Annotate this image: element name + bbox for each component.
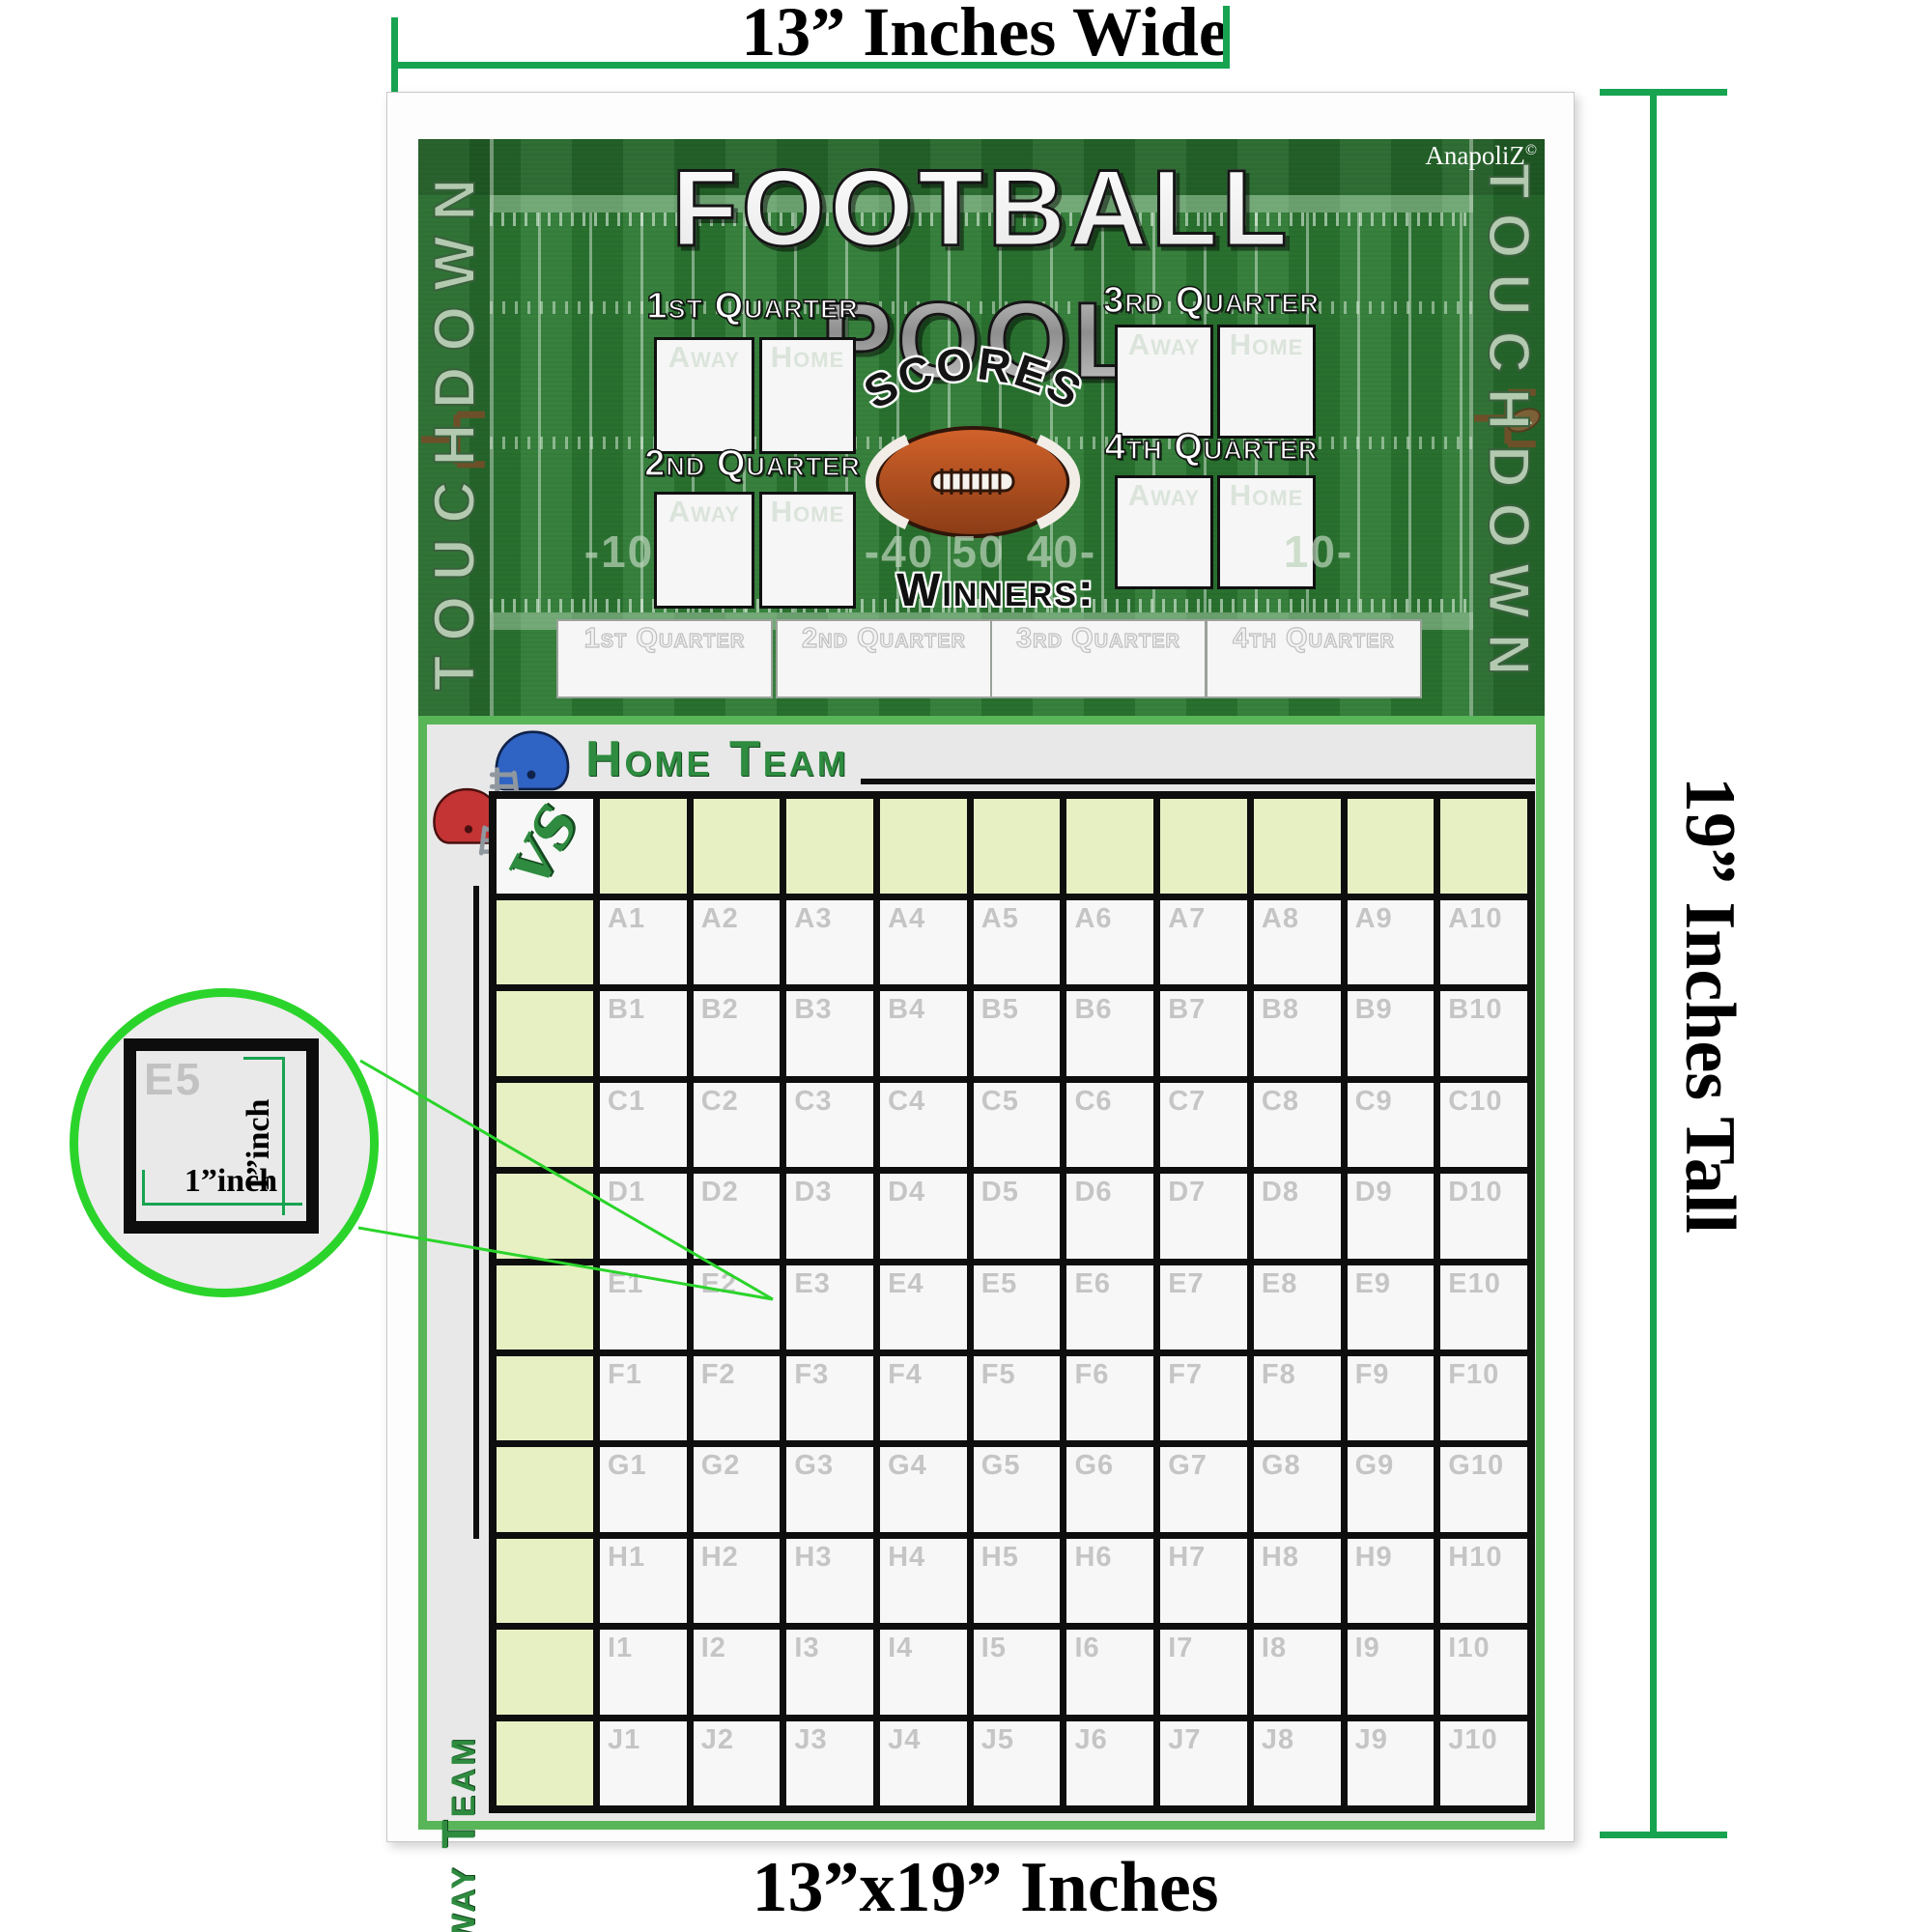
pool-square-cell: A4 (880, 900, 967, 984)
pool-square-cell: C4 (880, 1083, 967, 1167)
cell-width-label: 1”inch (163, 1163, 298, 1200)
pool-square-label: G1 (608, 1450, 647, 1482)
pool-square-cell: J7 (1160, 1721, 1247, 1805)
pool-square-cell: G9 (1348, 1447, 1435, 1531)
pool-square-cell: B3 (786, 991, 873, 1075)
column-number-cell (1254, 799, 1341, 894)
width-measure-line (391, 62, 1230, 69)
pool-square-label: I1 (608, 1633, 633, 1664)
row-number-cell (497, 1174, 593, 1258)
pool-square-label: B8 (1262, 994, 1299, 1026)
pool-square-label: A5 (981, 903, 1019, 935)
column-number-cell (880, 799, 967, 894)
pool-square-label: A3 (794, 903, 832, 935)
pool-square-label: I10 (1448, 1633, 1490, 1664)
pool-square-cell: H6 (1066, 1539, 1153, 1623)
pool-square-cell: C6 (1066, 1083, 1153, 1167)
pool-square-cell: J10 (1440, 1721, 1527, 1805)
football-icon (870, 428, 1075, 536)
height-measure-tick-bottom (1600, 1832, 1727, 1838)
pool-square-cell: F9 (1348, 1356, 1435, 1440)
row-number-cell (497, 991, 593, 1075)
winner-box-label: 2nd Quarter (778, 623, 990, 655)
brand-logo: AnapoliZ© (1425, 141, 1537, 171)
pool-square-label: J10 (1448, 1724, 1497, 1756)
pool-square-cell: B5 (974, 991, 1061, 1075)
pool-square-label: E8 (1262, 1268, 1297, 1300)
pool-square-cell: E5 (974, 1265, 1061, 1350)
quarter-home-box-label: Home (762, 495, 853, 529)
pool-square-cell: B2 (694, 991, 781, 1075)
pool-square-label: E5 (981, 1268, 1017, 1300)
home-team-write-line (861, 779, 1535, 784)
row-number-cell (497, 1265, 593, 1350)
pool-square-cell: E2 (694, 1265, 781, 1350)
column-number-cell (1348, 799, 1435, 894)
pool-square-label: H10 (1448, 1542, 1502, 1574)
pool-square-cell: F8 (1254, 1356, 1341, 1440)
yard-number: 10- (1261, 526, 1377, 578)
pool-square-cell: I1 (600, 1630, 687, 1714)
pool-square-cell: E8 (1254, 1265, 1341, 1350)
pool-square-label: I5 (981, 1633, 1007, 1664)
pool-square-label: G4 (888, 1450, 927, 1482)
pool-square-cell: D7 (1160, 1174, 1247, 1258)
column-number-cell (974, 799, 1061, 894)
pool-square-cell: J2 (694, 1721, 781, 1805)
pool-square-label: B4 (888, 994, 925, 1026)
pool-square-cell: E7 (1160, 1265, 1247, 1350)
pool-square-cell: F10 (1440, 1356, 1527, 1440)
pool-square-cell: F6 (1066, 1356, 1153, 1440)
pool-square-label: C10 (1448, 1086, 1502, 1118)
pool-square-cell: F3 (786, 1356, 873, 1440)
pool-square-cell: I8 (1254, 1630, 1341, 1714)
pool-square-label: C5 (981, 1086, 1019, 1118)
pool-square-cell: A7 (1160, 900, 1247, 984)
pool-square-cell: G4 (880, 1447, 967, 1531)
pool-square-cell: A3 (786, 900, 873, 984)
pool-square-cell: A2 (694, 900, 781, 984)
quarter-away-score-box: Away (654, 337, 754, 454)
pool-square-label: D10 (1448, 1177, 1502, 1208)
pool-square-cell: B1 (600, 991, 687, 1075)
pool-square-label: C7 (1168, 1086, 1206, 1118)
pool-square-label: G3 (794, 1450, 834, 1482)
pool-square-cell: B10 (1440, 991, 1527, 1075)
pool-square-label: C1 (608, 1086, 645, 1118)
pool-square-cell: B7 (1160, 991, 1247, 1075)
pool-square-label: E1 (608, 1268, 643, 1300)
pool-square-cell: D2 (694, 1174, 781, 1258)
pool-square-cell: D8 (1254, 1174, 1341, 1258)
pool-square-cell: B6 (1066, 991, 1153, 1075)
magnified-cell: E5 1”inch 1”inch (124, 1038, 319, 1234)
quarter-home-box-label: Home (762, 340, 853, 375)
winner-box: 1st Quarter (556, 619, 773, 698)
pool-square-label: A7 (1168, 903, 1206, 935)
brand-name: AnapoliZ (1425, 141, 1524, 170)
pool-square-cell: F7 (1160, 1356, 1247, 1440)
pool-square-label: I4 (888, 1633, 913, 1664)
pool-square-cell: E1 (600, 1265, 687, 1350)
pool-square-cell: G1 (600, 1447, 687, 1531)
pool-square-label: D2 (701, 1177, 739, 1208)
winner-box-label: 1st Quarter (558, 623, 771, 655)
pool-square-label: H1 (608, 1542, 645, 1574)
pool-square-cell: D6 (1066, 1174, 1153, 1258)
pool-square-label: C9 (1355, 1086, 1393, 1118)
pool-square-label: J1 (608, 1724, 640, 1756)
pool-square-label: F1 (608, 1359, 642, 1391)
pool-square-label: J2 (701, 1724, 734, 1756)
height-measure-line (1650, 89, 1657, 1838)
pool-square-cell: D1 (600, 1174, 687, 1258)
pool-square-cell: H7 (1160, 1539, 1247, 1623)
pool-square-label: B5 (981, 994, 1019, 1026)
pool-square-cell: A5 (974, 900, 1061, 984)
squares-grid: VSA1A2A3A4A5A6A7A8A9A10B1B2B3B4B5B6B7B8B… (489, 791, 1535, 1813)
row-number-cell (497, 1630, 593, 1714)
pool-square-label: A10 (1448, 903, 1502, 935)
pool-square-cell: I7 (1160, 1630, 1247, 1714)
pool-square-cell: G5 (974, 1447, 1061, 1531)
quarter-away-box-label: Away (1118, 478, 1210, 513)
pool-square-label: F2 (701, 1359, 736, 1391)
height-measure-tick-top (1600, 89, 1727, 96)
home-team-label: Home Team (585, 730, 849, 788)
pool-square-label: C6 (1074, 1086, 1112, 1118)
pool-square-label: C4 (888, 1086, 925, 1118)
pool-square-cell: A9 (1348, 900, 1435, 984)
pool-square-cell: B8 (1254, 991, 1341, 1075)
pool-square-label: D5 (981, 1177, 1019, 1208)
winner-box: 4th Quarter (1206, 619, 1422, 698)
pool-square-label: E4 (888, 1268, 923, 1300)
width-measure-tick-right (1223, 6, 1230, 66)
pool-grid-section: Home Team Away Team VSA1A2A3A4A5A6A7A8A9… (418, 716, 1545, 1830)
scores-arched-text: SCORES (858, 337, 1090, 418)
pool-square-label: F6 (1074, 1359, 1109, 1391)
pool-square-cell: A10 (1440, 900, 1527, 984)
pool-square-label: I7 (1168, 1633, 1193, 1664)
pool-square-label: J8 (1262, 1724, 1294, 1756)
pool-square-label: I8 (1262, 1633, 1287, 1664)
pool-square-cell: C7 (1160, 1083, 1247, 1167)
vs-label: VS (497, 795, 592, 896)
pool-square-cell: G2 (694, 1447, 781, 1531)
pool-square-cell: A6 (1066, 900, 1153, 984)
pool-square-cell: G10 (1440, 1447, 1527, 1531)
winner-box-label: 3rd Quarter (992, 623, 1205, 655)
pool-square-label: E2 (701, 1268, 737, 1300)
pool-square-label: C8 (1262, 1086, 1299, 1118)
pool-square-cell: J6 (1066, 1721, 1153, 1805)
away-team-write-line (473, 886, 479, 1539)
pool-square-label: H2 (701, 1542, 739, 1574)
pool-square-label: A4 (888, 903, 925, 935)
pool-square-label: A6 (1074, 903, 1112, 935)
yard-number: 40- (1004, 526, 1120, 578)
pool-square-cell: C8 (1254, 1083, 1341, 1167)
pool-square-label: G5 (981, 1450, 1021, 1482)
quarter-home-score-box: Home (1217, 325, 1316, 439)
pool-square-label: J9 (1355, 1724, 1388, 1756)
column-number-cell (786, 799, 873, 894)
football-pool-poster: TOUCHDOWN TOUCHDOWN FOOTBALL POOL Anapol… (386, 92, 1575, 1842)
pool-square-cell: I3 (786, 1630, 873, 1714)
pool-square-cell: I10 (1440, 1630, 1527, 1714)
pool-square-label: G7 (1168, 1450, 1207, 1482)
pool-square-cell: C3 (786, 1083, 873, 1167)
column-number-cell (694, 799, 781, 894)
pool-square-label: A8 (1262, 903, 1299, 935)
pool-square-label: J6 (1074, 1724, 1107, 1756)
pool-square-cell: I2 (694, 1630, 781, 1714)
size-dimension-label: 13”x19” Inches (676, 1847, 1294, 1929)
pool-square-cell: D9 (1348, 1174, 1435, 1258)
pool-square-label: H9 (1355, 1542, 1393, 1574)
pool-square-cell: H4 (880, 1539, 967, 1623)
magnified-cell-label: E5 (144, 1053, 202, 1105)
cell-width-measure-line (142, 1203, 302, 1206)
pool-square-cell: H9 (1348, 1539, 1435, 1623)
pool-square-label: E9 (1355, 1268, 1391, 1300)
pool-square-label: I2 (701, 1633, 726, 1664)
quarter-home-score-box: Home (759, 337, 856, 454)
pool-square-cell: E9 (1348, 1265, 1435, 1350)
winner-box: 2nd Quarter (776, 619, 992, 698)
pool-square-cell: J4 (880, 1721, 967, 1805)
pool-square-label: E3 (794, 1268, 830, 1300)
pool-square-label: E7 (1168, 1268, 1204, 1300)
touchdown-left-text: TOUCHDOWN (421, 163, 488, 691)
pool-square-cell: E3 (786, 1265, 873, 1350)
pool-square-cell: I5 (974, 1630, 1061, 1714)
product-image-canvas: 13” Inches Wide 19” Inches Tall 13”x19” … (0, 0, 1932, 1932)
pool-square-cell: C9 (1348, 1083, 1435, 1167)
pool-square-cell: H2 (694, 1539, 781, 1623)
pool-square-label: A2 (701, 903, 739, 935)
column-number-cell (600, 799, 687, 894)
pool-square-cell: G3 (786, 1447, 873, 1531)
pool-square-cell: G8 (1254, 1447, 1341, 1531)
pool-square-cell: J8 (1254, 1721, 1341, 1805)
quarter-label: 2nd Quarter (608, 443, 897, 485)
pool-square-label: F7 (1168, 1359, 1203, 1391)
pool-square-label: H6 (1074, 1542, 1112, 1574)
row-number-cell (497, 1083, 593, 1167)
pool-square-label: I6 (1074, 1633, 1099, 1664)
pool-square-cell: A8 (1254, 900, 1341, 984)
pool-square-cell: C1 (600, 1083, 687, 1167)
pool-square-label: D6 (1074, 1177, 1112, 1208)
pool-square-label: B6 (1074, 994, 1112, 1026)
row-number-cell (497, 900, 593, 984)
pool-square-label: I9 (1355, 1633, 1380, 1664)
pool-square-label: J7 (1168, 1724, 1201, 1756)
quarter-away-box-label: Away (1118, 327, 1210, 362)
row-number-cell (497, 1721, 593, 1805)
pool-square-cell: F5 (974, 1356, 1061, 1440)
quarter-away-box-label: Away (657, 340, 752, 375)
pool-square-cell: I6 (1066, 1630, 1153, 1714)
svg-text:SCORES: SCORES (858, 337, 1090, 418)
pool-square-label: J3 (794, 1724, 827, 1756)
pool-square-label: G8 (1262, 1450, 1301, 1482)
pool-square-label: G10 (1448, 1450, 1504, 1482)
pool-square-cell: I4 (880, 1630, 967, 1714)
pool-square-label: H7 (1168, 1542, 1206, 1574)
pool-square-cell: F4 (880, 1356, 967, 1440)
winner-box-label: 4th Quarter (1207, 623, 1420, 655)
pool-square-cell: A1 (600, 900, 687, 984)
pool-square-label: J4 (888, 1724, 921, 1756)
pool-square-label: F3 (794, 1359, 829, 1391)
row-number-cell (497, 1356, 593, 1440)
quarter-label: 4th Quarter (1066, 427, 1356, 469)
pool-square-label: G6 (1074, 1450, 1114, 1482)
touchdown-band-left: TOUCHDOWN (418, 139, 494, 716)
field-header: TOUCHDOWN TOUCHDOWN FOOTBALL POOL Anapol… (418, 139, 1545, 716)
pool-square-label: A1 (608, 903, 645, 935)
pool-square-cell: H3 (786, 1539, 873, 1623)
pool-square-label: H3 (794, 1542, 832, 1574)
quarter-label: 3rd Quarter (1066, 280, 1356, 322)
vs-corner-cell: VS (497, 799, 593, 894)
winner-box: 3rd Quarter (990, 619, 1207, 698)
pool-square-cell: J5 (974, 1721, 1061, 1805)
pool-square-cell: J3 (786, 1721, 873, 1805)
pool-square-label: B2 (701, 994, 739, 1026)
pool-square-label: H4 (888, 1542, 925, 1574)
row-number-cell (497, 1539, 593, 1623)
column-number-cell (1440, 799, 1527, 894)
pool-square-cell: E4 (880, 1265, 967, 1350)
quarter-home-box-label: Home (1220, 478, 1313, 513)
pool-square-label: F5 (981, 1359, 1016, 1391)
pool-square-label: H5 (981, 1542, 1019, 1574)
pool-square-cell: F1 (600, 1356, 687, 1440)
pool-square-label: B3 (794, 994, 832, 1026)
pool-square-cell: J9 (1348, 1721, 1435, 1805)
pool-square-label: B1 (608, 994, 645, 1026)
pool-square-cell: F2 (694, 1356, 781, 1440)
brand-copyright-mark: © (1525, 142, 1537, 158)
pool-square-label: D8 (1262, 1177, 1299, 1208)
pool-square-label: D9 (1355, 1177, 1393, 1208)
touchdown-right-text: TOUCHDOWN (1476, 163, 1543, 691)
pool-square-cell: E6 (1066, 1265, 1153, 1350)
pool-square-label: B7 (1168, 994, 1206, 1026)
row-number-cell (497, 1447, 593, 1531)
pool-square-label: C3 (794, 1086, 832, 1118)
pool-square-label: H8 (1262, 1542, 1299, 1574)
column-number-cell (1160, 799, 1247, 894)
pool-square-cell: H8 (1254, 1539, 1341, 1623)
pool-square-cell: H10 (1440, 1539, 1527, 1623)
pool-square-label: I3 (794, 1633, 819, 1664)
pool-square-cell: J1 (600, 1721, 687, 1805)
pool-square-cell: B4 (880, 991, 967, 1075)
pool-square-cell: C10 (1440, 1083, 1527, 1167)
pool-square-label: B9 (1355, 994, 1393, 1026)
pool-square-label: C2 (701, 1086, 739, 1118)
quarter-away-box-label: Away (657, 495, 752, 529)
pool-square-cell: D4 (880, 1174, 967, 1258)
pool-square-label: F4 (888, 1359, 923, 1391)
quarter-label: 1st Quarter (608, 286, 897, 327)
pool-square-cell: H5 (974, 1539, 1061, 1623)
quarter-away-score-box: Away (1115, 325, 1213, 439)
pool-square-cell: D5 (974, 1174, 1061, 1258)
pool-square-cell: H1 (600, 1539, 687, 1623)
pool-square-label: F8 (1262, 1359, 1296, 1391)
pool-square-cell: D3 (786, 1174, 873, 1258)
pool-square-cell: E10 (1440, 1265, 1527, 1350)
pool-square-label: G2 (701, 1450, 741, 1482)
pool-square-label: F10 (1448, 1359, 1499, 1391)
column-number-cell (1066, 799, 1153, 894)
away-team-label: Away Team (433, 1556, 486, 1932)
pool-square-label: F9 (1355, 1359, 1390, 1391)
pool-square-label: D3 (794, 1177, 832, 1208)
pool-square-cell: B9 (1348, 991, 1435, 1075)
pool-square-cell: G7 (1160, 1447, 1247, 1531)
pool-square-cell: I9 (1348, 1630, 1435, 1714)
pool-square-label: D7 (1168, 1177, 1206, 1208)
pool-square-cell: C5 (974, 1083, 1061, 1167)
touchdown-band-right: TOUCHDOWN (1469, 139, 1545, 716)
pool-square-cell: G6 (1066, 1447, 1153, 1531)
pool-square-label: J5 (981, 1724, 1014, 1756)
cell-size-magnifier: E5 1”inch 1”inch (70, 988, 379, 1297)
pool-square-cell: D10 (1440, 1174, 1527, 1258)
pool-square-label: G9 (1355, 1450, 1395, 1482)
pool-square-label: D4 (888, 1177, 925, 1208)
yard-number: -10 (561, 526, 677, 578)
pool-square-label: E10 (1448, 1268, 1501, 1300)
height-dimension-label: 19” Inches Tall (1663, 667, 1756, 1343)
pool-square-cell: C2 (694, 1083, 781, 1167)
pool-square-label: E6 (1074, 1268, 1110, 1300)
quarter-home-box-label: Home (1220, 327, 1313, 362)
pool-square-label: D1 (608, 1177, 645, 1208)
pool-square-label: A9 (1355, 903, 1393, 935)
pool-square-label: B10 (1448, 994, 1502, 1026)
